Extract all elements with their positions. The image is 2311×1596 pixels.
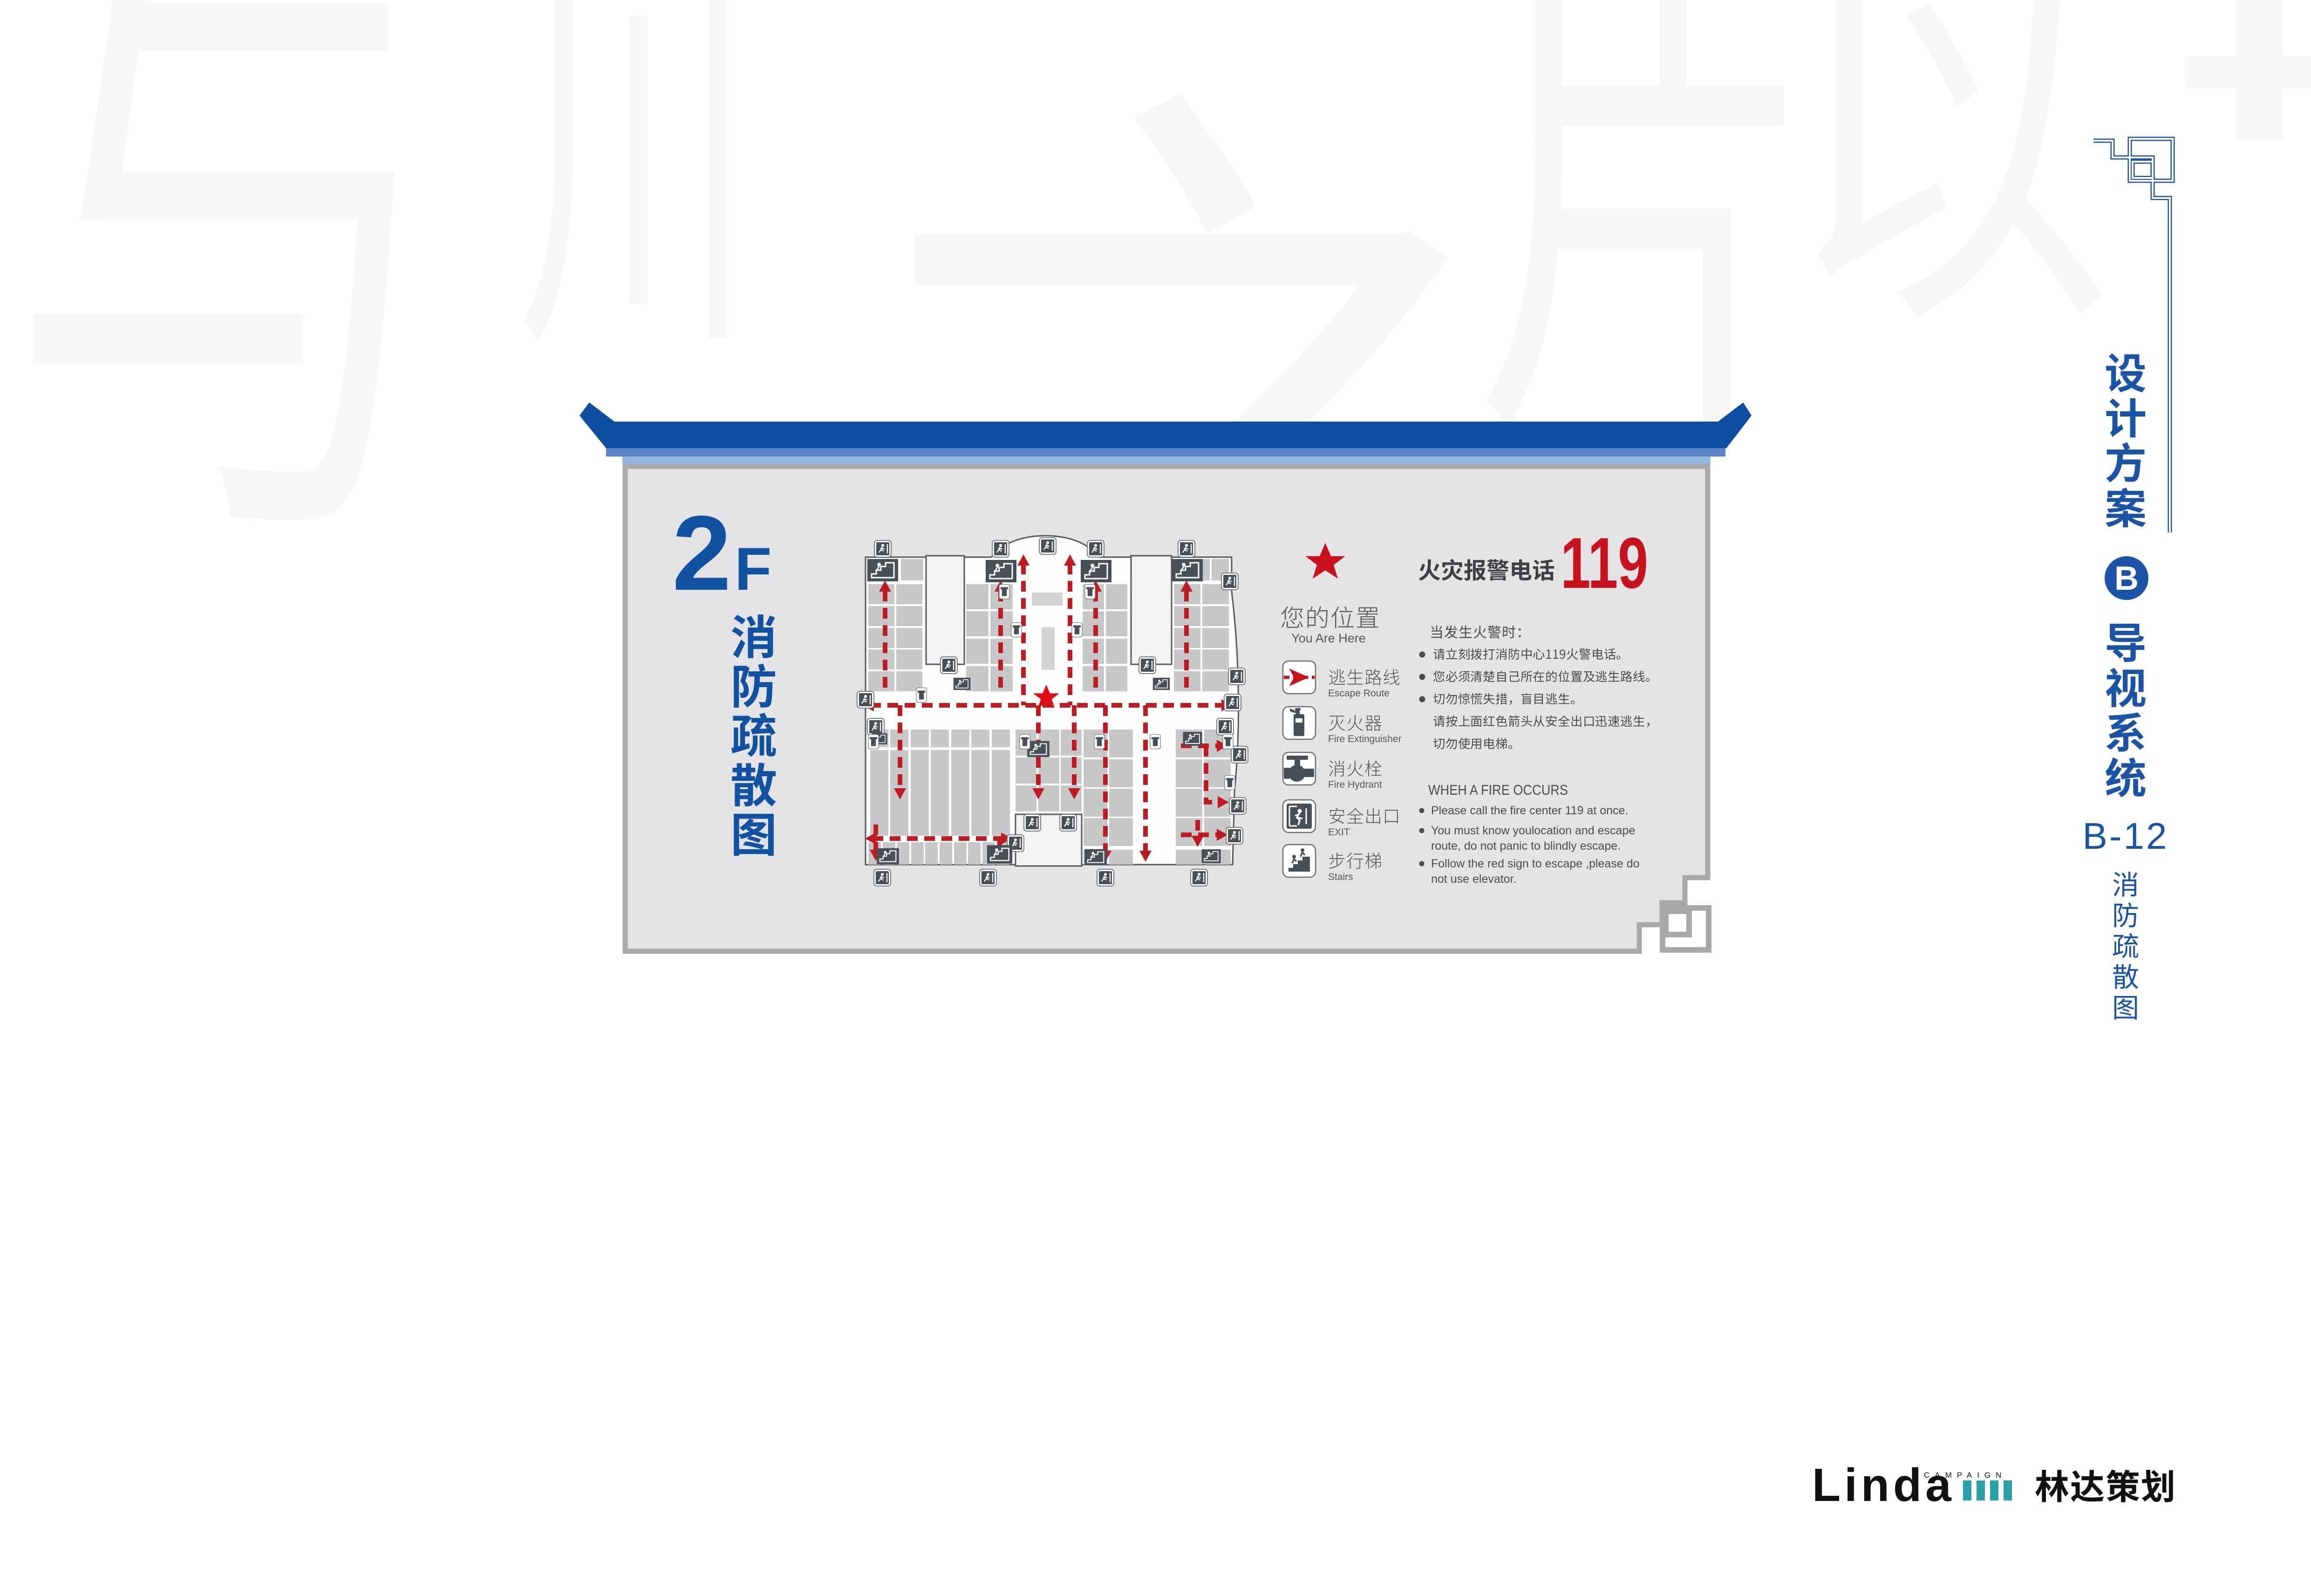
svg-text:EXIT: EXIT xyxy=(1328,827,1350,838)
svg-text:Fire Extinguisher: Fire Extinguisher xyxy=(1328,734,1402,744)
svg-text:You Are Here: You Are Here xyxy=(1291,631,1366,645)
svg-text:Please call the fire center 11: Please call the fire center 119 at once. xyxy=(1431,804,1628,817)
svg-text:route, do not panic to blindly: route, do not panic to blindly escape. xyxy=(1431,839,1621,853)
svg-text:WHEH A FIRE OCCURS: WHEH A FIRE OCCURS xyxy=(1428,782,1568,798)
svg-text:not use elevator.: not use elevator. xyxy=(1431,873,1516,886)
svg-text:Stairs: Stairs xyxy=(1328,872,1353,882)
svg-text:119: 119 xyxy=(1561,523,1648,603)
svg-text:You must know youlocation: You must know youlocation and escape xyxy=(1431,824,1635,837)
svg-text:B: B xyxy=(2114,560,2139,597)
svg-text:CAMPAIGN: CAMPAIGN xyxy=(1924,1471,2006,1480)
svg-text:2: 2 xyxy=(672,494,731,613)
svg-text:Follow the red sign to escape: Follow the red sign to escape ,please do xyxy=(1431,857,1640,870)
svg-text:Linda: Linda xyxy=(1812,1459,1955,1511)
svg-text:Fire Hydrant: Fire Hydrant xyxy=(1328,779,1382,790)
svg-text:B-12: B-12 xyxy=(2083,815,2169,857)
svg-text:F: F xyxy=(735,535,771,603)
svg-text:Escape Route: Escape Route xyxy=(1328,688,1390,699)
